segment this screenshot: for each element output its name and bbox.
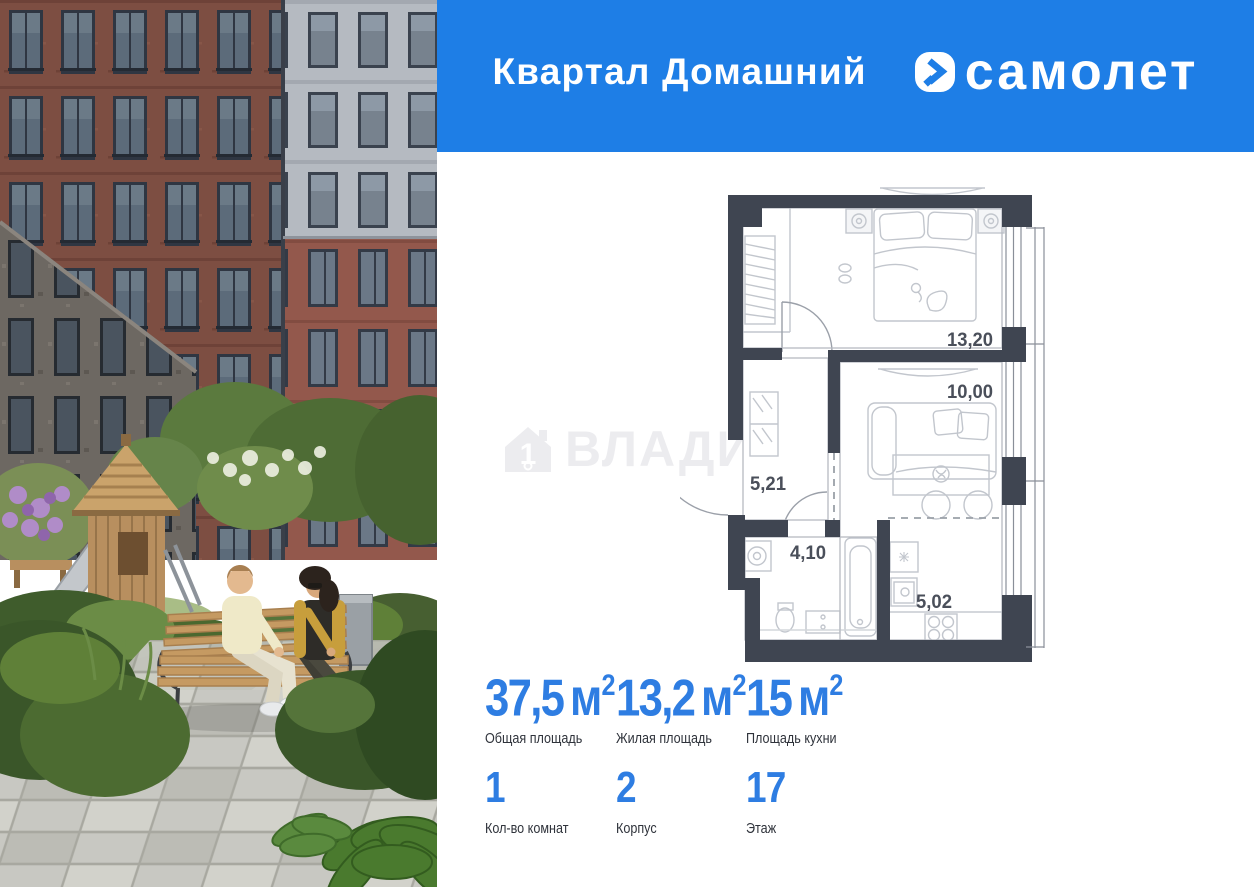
room-area-bathroom: 4,10 bbox=[790, 543, 826, 564]
stat-living-area-label: Жилая площадь bbox=[616, 730, 712, 747]
listing-card: Квартал Домашний самолет 1 ВЛАДИС bbox=[0, 0, 1254, 887]
house-number-icon: 1 bbox=[501, 422, 555, 476]
stat-building-value: 2 bbox=[616, 770, 636, 806]
room-area-hallway: 5,21 bbox=[750, 474, 786, 495]
stat-kitchen-area: 15м2 Площадь кухни bbox=[746, 666, 862, 748]
courtyard-photo bbox=[0, 0, 437, 887]
room-area-living: 10,00 bbox=[947, 382, 993, 403]
stat-floor: 17 Этаж bbox=[746, 770, 793, 838]
stat-rooms: 1 Кол-во комнат bbox=[485, 770, 584, 838]
stat-floor-value: 17 bbox=[746, 770, 785, 806]
info-panel: Квартал Домашний самолет 1 ВЛАДИС bbox=[437, 0, 1254, 887]
stat-total-area-label: Общая площадь bbox=[485, 730, 582, 747]
svg-text:1: 1 bbox=[520, 438, 537, 471]
stat-building-label: Корпус bbox=[616, 820, 657, 837]
brand-name: самолет bbox=[965, 46, 1199, 98]
stat-kitchen-area-label: Площадь кухни bbox=[746, 730, 837, 747]
stat-building: 2 Корпус bbox=[616, 770, 664, 838]
samolet-arrow-icon bbox=[915, 52, 955, 92]
room-area-bedroom: 13,20 bbox=[947, 330, 993, 351]
stat-rooms-label: Кол-во комнат bbox=[485, 820, 568, 837]
brand-logo: самолет bbox=[915, 46, 1199, 98]
project-name: Квартал Домашний bbox=[492, 51, 866, 93]
header-banner: Квартал Домашний самолет bbox=[437, 0, 1254, 152]
stat-living-area-value: 13,2м2 bbox=[616, 666, 747, 720]
stat-total-area-value: 37,5м2 bbox=[485, 666, 616, 720]
floor-plan: 13,20 10,00 5,21 4,10 5,02 bbox=[680, 180, 1060, 670]
stat-kitchen-area-value: 15м2 bbox=[746, 666, 843, 720]
stat-floor-label: Этаж bbox=[746, 820, 776, 837]
stat-rooms-value: 1 bbox=[485, 770, 505, 806]
room-area-kitchen: 5,02 bbox=[916, 592, 952, 613]
